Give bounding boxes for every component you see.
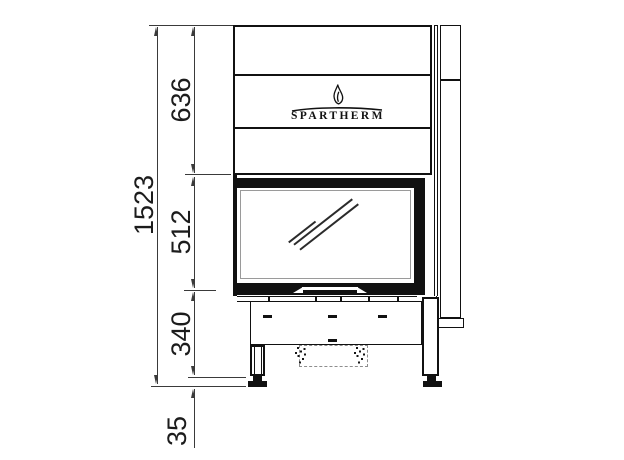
arrowhead [154,375,158,384]
arrowhead [191,164,195,173]
fireplace-dimension-drawing: 1523 636 512 340 35 SPARTHERM [0,0,624,460]
facade-divider-upper [233,74,432,76]
arrowhead [191,27,195,36]
dimension-label-total-height: 1523 [129,165,159,245]
right-leg [422,297,439,376]
extension-line-door-top [185,174,231,175]
facade-divider-lower [233,127,432,129]
extension-line-door-bottom [184,290,216,291]
base-marking [263,315,272,318]
door-frame-right [414,178,425,295]
arrowhead [154,27,158,36]
fastener-marks-left [297,347,299,349]
side-return-strip [434,25,438,296]
rear-duct-divider [441,79,460,81]
extension-line-top [149,25,233,26]
door-handle-slot [302,287,358,290]
base-marking [328,339,337,342]
brand-name: SPARTHERM [291,110,383,122]
arrowhead [191,177,195,186]
left-foot-plate [248,381,267,387]
arrowhead [191,279,195,288]
brand-logo: SPARTHERM [291,84,383,126]
rear-duct-flange [438,318,464,328]
fastener-marks-right [356,347,358,349]
arrowhead [191,389,195,398]
glass-pane-inner-edge [240,190,411,279]
dimension-label-glass-door: 512 [166,197,196,267]
extension-line-leg-bottom [188,377,246,378]
extension-line-floor [151,386,246,387]
base-marking [328,315,337,318]
dimension-label-upper-section: 636 [166,65,196,135]
base-marking [378,315,387,318]
rear-duct [440,25,461,318]
dimension-label-foot-clearance: 35 [162,401,192,460]
right-foot-plate [423,381,442,387]
left-leg-channel [254,347,262,375]
dimension-label-base-section: 340 [166,299,196,369]
door-frame-top [237,178,425,188]
